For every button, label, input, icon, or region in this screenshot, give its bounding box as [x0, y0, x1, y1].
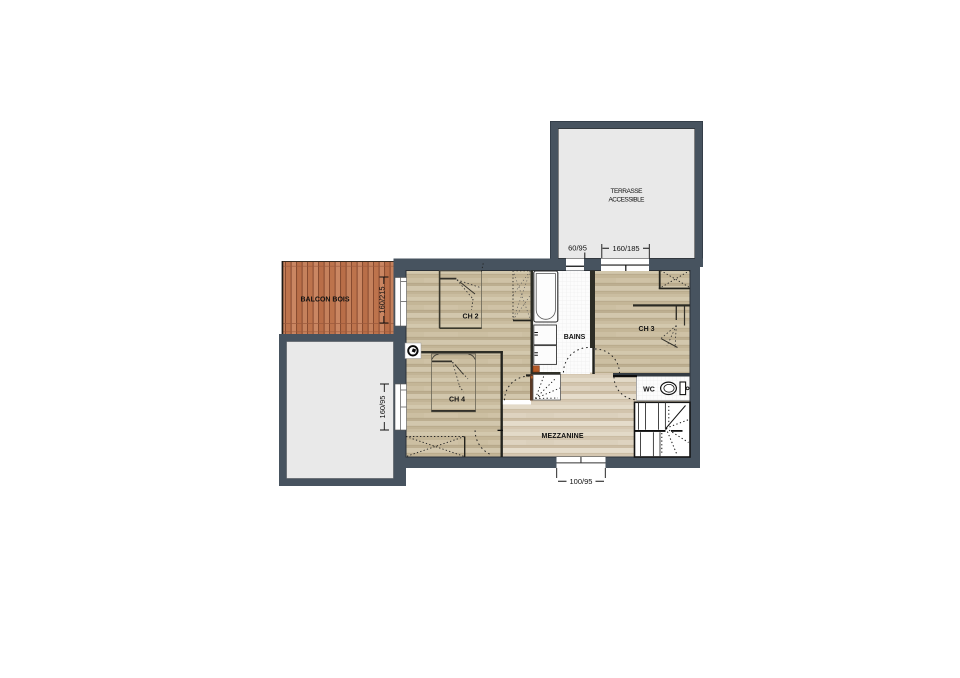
svg-text:WC: WC: [643, 387, 655, 394]
svg-text:BAINS: BAINS: [564, 334, 586, 341]
svg-text:ACCESSIBLE: ACCESSIBLE: [609, 197, 646, 204]
svg-text:60/95: 60/95: [568, 244, 587, 253]
svg-text:CH 3: CH 3: [639, 326, 655, 333]
svg-text:BALCON BOIS: BALCON BOIS: [301, 297, 350, 304]
svg-text:160/95: 160/95: [378, 396, 387, 419]
svg-text:160/185: 160/185: [612, 244, 639, 253]
svg-text:160/215: 160/215: [377, 286, 386, 313]
svg-text:100/95: 100/95: [570, 477, 593, 486]
svg-text:TERRASSE: TERRASSE: [611, 188, 644, 195]
svg-text:MEZZANINE: MEZZANINE: [542, 433, 584, 440]
svg-text:CH 4: CH 4: [449, 397, 465, 404]
svg-text:CH 2: CH 2: [463, 314, 479, 321]
